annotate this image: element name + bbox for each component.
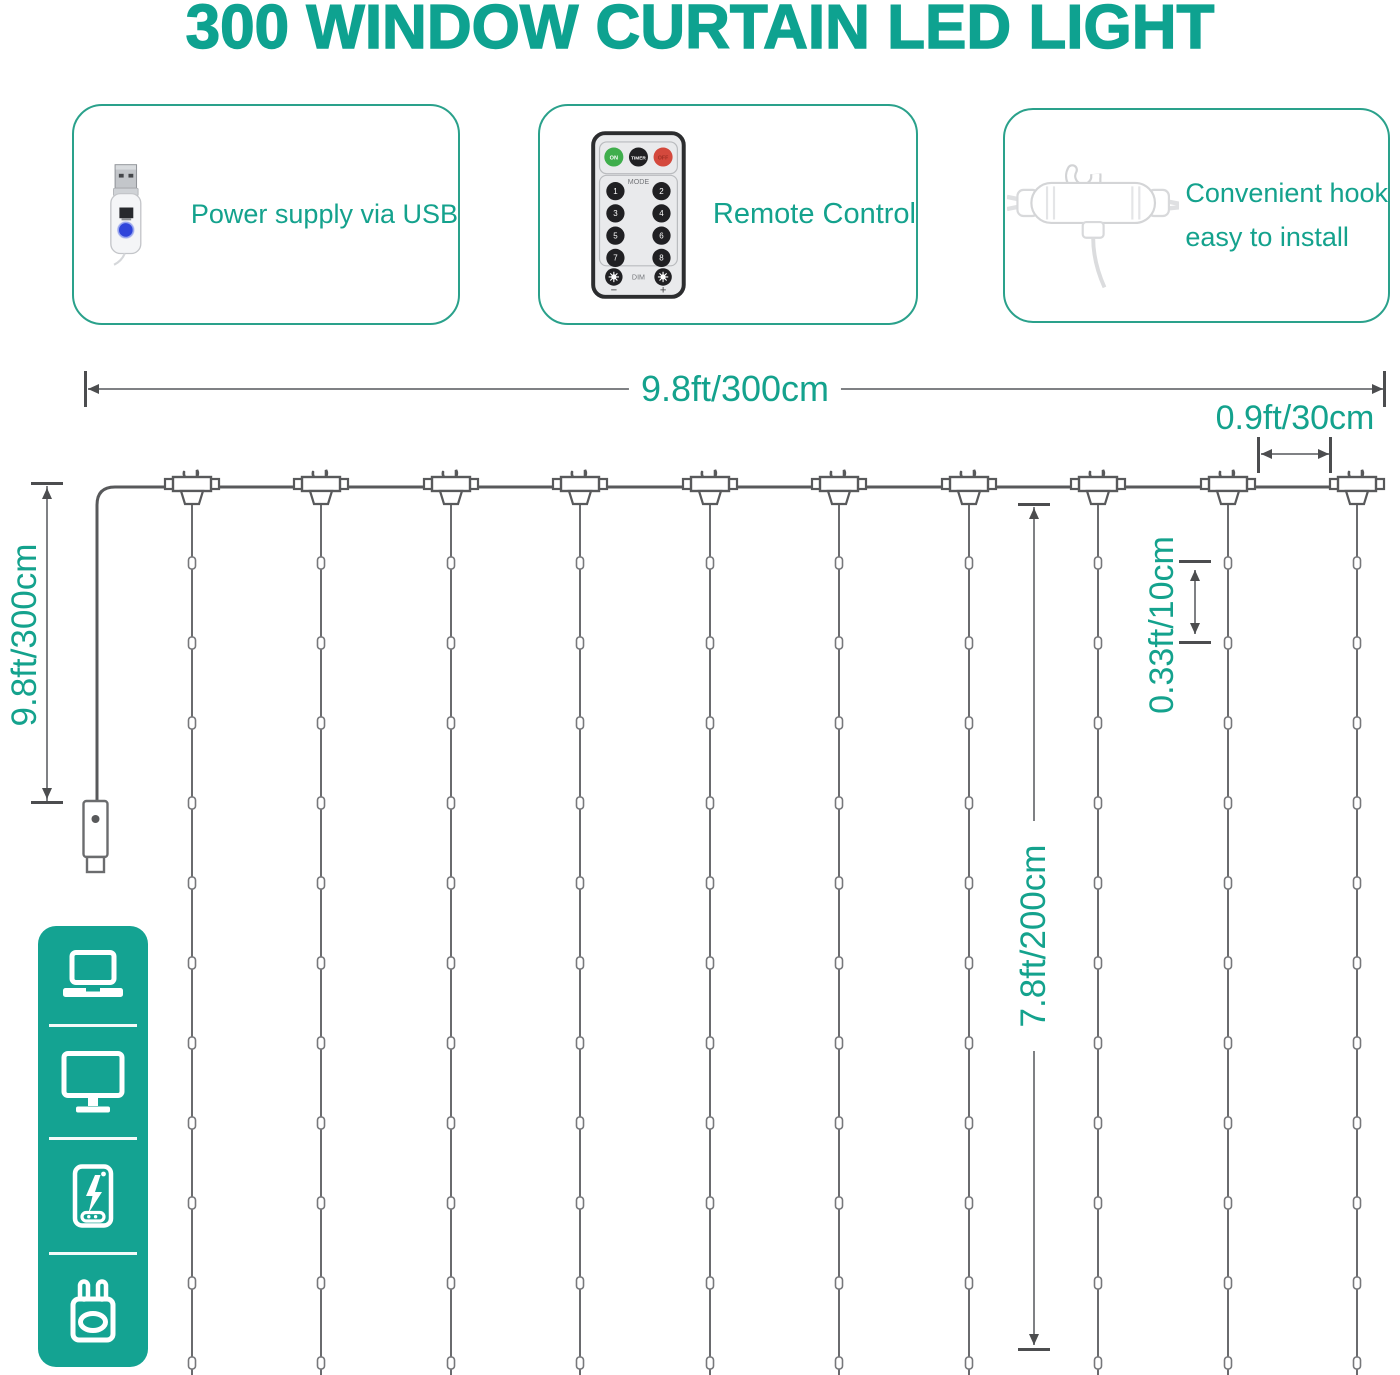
led-bead: [318, 1197, 325, 1209]
led-bead: [836, 877, 843, 889]
svg-text:DIM: DIM: [632, 273, 645, 281]
led-bead: [1225, 717, 1232, 729]
svg-text:+: +: [660, 284, 667, 296]
led-bead: [318, 1037, 325, 1049]
feature-label-remote: Remote Control: [713, 191, 916, 237]
led-bead: [189, 637, 196, 649]
led-bead: [707, 717, 714, 729]
main-cable: [97, 487, 1384, 801]
svg-text:1: 1: [613, 186, 618, 195]
light-strand: [707, 503, 714, 1375]
led-bead: [966, 717, 973, 729]
arrowhead-down-icon: [1029, 1334, 1039, 1345]
arrowhead-down-icon: [1190, 623, 1200, 634]
led-bead: [448, 557, 455, 569]
hanging-hook-icon: [1007, 130, 1179, 302]
led-bead: [318, 557, 325, 569]
led-bead: [707, 1277, 714, 1289]
led-bead: [1354, 877, 1361, 889]
led-bead: [577, 557, 584, 569]
feature-label-usb: Power supply via USB: [191, 193, 458, 236]
led-bead: [1095, 1197, 1102, 1209]
led-bead: [966, 797, 973, 809]
led-bead: [1095, 637, 1102, 649]
led-bead: [189, 1037, 196, 1049]
led-bead: [1354, 1117, 1361, 1129]
led-bead: [836, 957, 843, 969]
led-bead: [577, 877, 584, 889]
led-bead: [577, 1357, 584, 1369]
dimension-tick: [31, 801, 63, 804]
led-bead: [966, 1277, 973, 1289]
led-bead: [836, 1277, 843, 1289]
led-bead: [966, 637, 973, 649]
led-bead: [448, 1037, 455, 1049]
led-bead: [318, 717, 325, 729]
led-bead: [1225, 637, 1232, 649]
led-bead: [966, 1357, 973, 1369]
led-bead: [1095, 957, 1102, 969]
led-bead: [707, 877, 714, 889]
led-bead: [836, 637, 843, 649]
dimension-tick: [1018, 503, 1050, 506]
dimension-label-drop-length: 7.8ft/200cm: [1013, 821, 1055, 1051]
light-strand: [318, 503, 325, 1375]
led-bead: [1095, 557, 1102, 569]
sidebar-divider: [49, 1024, 137, 1027]
led-bead: [707, 1357, 714, 1369]
feature-label-hook: Convenient hook easy to install: [1185, 172, 1388, 258]
led-bead: [318, 1277, 325, 1289]
curtain-hook: [553, 470, 607, 504]
led-bead: [707, 797, 714, 809]
curtain-hook: [1071, 470, 1125, 504]
arrowhead-up-icon: [1029, 508, 1039, 519]
arrowhead-right-icon: [1372, 384, 1383, 394]
svg-text:4: 4: [659, 209, 664, 218]
light-strand: [448, 503, 455, 1375]
led-bead: [1225, 797, 1232, 809]
feature-box-remote: ON TIMER OFF MODE 1 2 3 4 5 6 7 8 DIM − …: [538, 104, 918, 325]
led-bead: [189, 797, 196, 809]
led-bead: [1354, 1357, 1361, 1369]
dimension-label-height-total: 9.8ft/300cm: [4, 525, 46, 745]
svg-text:ON: ON: [610, 155, 618, 161]
led-bead: [1354, 1277, 1361, 1289]
led-bead: [1354, 557, 1361, 569]
svg-text:OFF: OFF: [658, 155, 668, 161]
led-bead: [1225, 1117, 1232, 1129]
led-bead: [318, 1117, 325, 1129]
feature-box-usb: Power supply via USB: [72, 104, 460, 325]
dimension-tick: [1383, 371, 1386, 407]
led-bead: [836, 1037, 843, 1049]
dimension-label-width-total: 9.8ft/300cm: [629, 368, 841, 410]
led-bead: [448, 637, 455, 649]
led-bead: [836, 1117, 843, 1129]
feature-label-hook-line1: Convenient hook: [1185, 172, 1388, 215]
led-bead: [189, 1197, 196, 1209]
curtain-hook: [942, 470, 996, 504]
led-bead: [1095, 717, 1102, 729]
led-bead: [318, 877, 325, 889]
led-bead: [577, 1277, 584, 1289]
curtain-hook: [165, 470, 219, 504]
dimension-tick: [84, 371, 87, 407]
svg-text:7: 7: [613, 253, 618, 262]
led-bead: [966, 1117, 973, 1129]
led-bead: [448, 1117, 455, 1129]
arrowhead-up-icon: [42, 488, 52, 499]
light-strand: [836, 503, 843, 1375]
led-bead: [577, 1197, 584, 1209]
svg-text:MODE: MODE: [628, 178, 650, 186]
usb-connector-icon: [98, 117, 173, 313]
led-bead: [577, 1117, 584, 1129]
dimension-tick: [1329, 437, 1332, 473]
dimension-tick: [1179, 560, 1211, 563]
led-bead: [836, 797, 843, 809]
dimension-label-led-spacing: 0.33ft/10cm: [1141, 495, 1183, 755]
led-bead: [966, 1037, 973, 1049]
remote-control-icon: ON TIMER OFF MODE 1 2 3 4 5 6 7 8 DIM − …: [590, 109, 687, 321]
light-strand: [189, 503, 196, 1375]
compatible-devices-sidebar: [38, 926, 148, 1367]
led-bead: [1095, 1117, 1102, 1129]
arrowhead-left-icon: [1261, 449, 1272, 459]
light-strand: [1225, 503, 1232, 1375]
svg-text:3: 3: [613, 209, 618, 218]
led-bead: [318, 1357, 325, 1369]
arrowhead-up-icon: [1190, 570, 1200, 581]
led-bead: [577, 717, 584, 729]
led-bead: [189, 957, 196, 969]
led-bead: [966, 557, 973, 569]
led-bead: [448, 717, 455, 729]
wall-plug-icon: [66, 1279, 120, 1343]
led-bead: [1225, 557, 1232, 569]
led-bead: [966, 1197, 973, 1209]
usb-plug-tip: [87, 857, 104, 872]
dimension-line: [46, 486, 48, 801]
led-bead: [448, 797, 455, 809]
sidebar-divider: [49, 1137, 137, 1140]
light-strand: [577, 503, 584, 1375]
dimension-tick: [1018, 1348, 1050, 1351]
led-bead: [1225, 1277, 1232, 1289]
svg-text:−: −: [611, 284, 618, 296]
light-strand: [1095, 503, 1102, 1375]
led-bead: [189, 877, 196, 889]
led-bead: [707, 557, 714, 569]
led-bead: [1225, 957, 1232, 969]
led-bead: [836, 1197, 843, 1209]
curtain-hook: [294, 470, 348, 504]
led-bead: [836, 1357, 843, 1369]
sidebar-divider: [49, 1252, 137, 1255]
led-bead: [836, 717, 843, 729]
led-bead: [448, 1197, 455, 1209]
usb-controller: [84, 801, 108, 872]
monitor-icon: [61, 1051, 125, 1113]
arrowhead-right-icon: [1318, 449, 1329, 459]
led-bead: [577, 797, 584, 809]
led-bead: [1225, 877, 1232, 889]
led-bead: [966, 877, 973, 889]
led-bead: [1095, 797, 1102, 809]
svg-text:2: 2: [659, 186, 664, 195]
svg-text:5: 5: [613, 231, 618, 240]
led-bead: [707, 1117, 714, 1129]
led-bead: [448, 957, 455, 969]
led-bead: [577, 957, 584, 969]
curtain-hook: [1330, 470, 1384, 504]
led-bead: [318, 797, 325, 809]
led-bead: [836, 557, 843, 569]
led-bead: [1354, 1197, 1361, 1209]
led-bead: [448, 877, 455, 889]
led-bead: [448, 1277, 455, 1289]
led-bead: [1354, 717, 1361, 729]
led-bead: [189, 1357, 196, 1369]
led-bead: [1095, 1357, 1102, 1369]
dimension-tick: [1179, 641, 1211, 644]
led-bead: [318, 957, 325, 969]
curtain-hook: [812, 470, 866, 504]
led-bead: [577, 637, 584, 649]
led-bead: [1095, 877, 1102, 889]
led-bead: [1095, 1037, 1102, 1049]
led-bead: [1354, 1037, 1361, 1049]
led-bead: [1095, 1277, 1102, 1289]
feature-box-hook: Convenient hook easy to install: [1003, 108, 1390, 323]
light-strand: [966, 503, 973, 1375]
led-bead: [189, 1117, 196, 1129]
power-bank-icon: [70, 1164, 116, 1228]
led-bead: [707, 1197, 714, 1209]
led-bead: [189, 1277, 196, 1289]
led-bead: [966, 957, 973, 969]
led-bead: [1354, 797, 1361, 809]
curtain-hook: [424, 470, 478, 504]
svg-text:6: 6: [659, 231, 664, 240]
led-bead: [707, 637, 714, 649]
led-bead: [577, 1037, 584, 1049]
led-bead: [1225, 1357, 1232, 1369]
arrowhead-down-icon: [42, 788, 52, 799]
led-bead: [1225, 1037, 1232, 1049]
laptop-icon: [61, 950, 125, 1000]
led-bead: [707, 1037, 714, 1049]
dimension-label-hook-spacing: 0.9ft/30cm: [1216, 397, 1375, 439]
dimension-tick: [1257, 437, 1260, 473]
led-bead: [1225, 1197, 1232, 1209]
arrowhead-left-icon: [88, 384, 99, 394]
svg-text:8: 8: [659, 253, 664, 262]
led-bead: [189, 717, 196, 729]
curtain-hook: [683, 470, 737, 504]
page-title: 300 WINDOW CURTAIN LED LIGHT: [0, 0, 1400, 60]
svg-text:TIMER: TIMER: [631, 155, 646, 161]
curtain-hook: [1201, 470, 1255, 504]
led-bead: [1354, 957, 1361, 969]
led-bead: [1354, 637, 1361, 649]
led-bead: [318, 637, 325, 649]
led-bead: [448, 1357, 455, 1369]
feature-label-hook-line2: easy to install: [1185, 216, 1388, 259]
dimension-tick: [31, 482, 63, 485]
light-strand: [1354, 503, 1361, 1375]
led-bead: [189, 557, 196, 569]
led-bead: [707, 957, 714, 969]
